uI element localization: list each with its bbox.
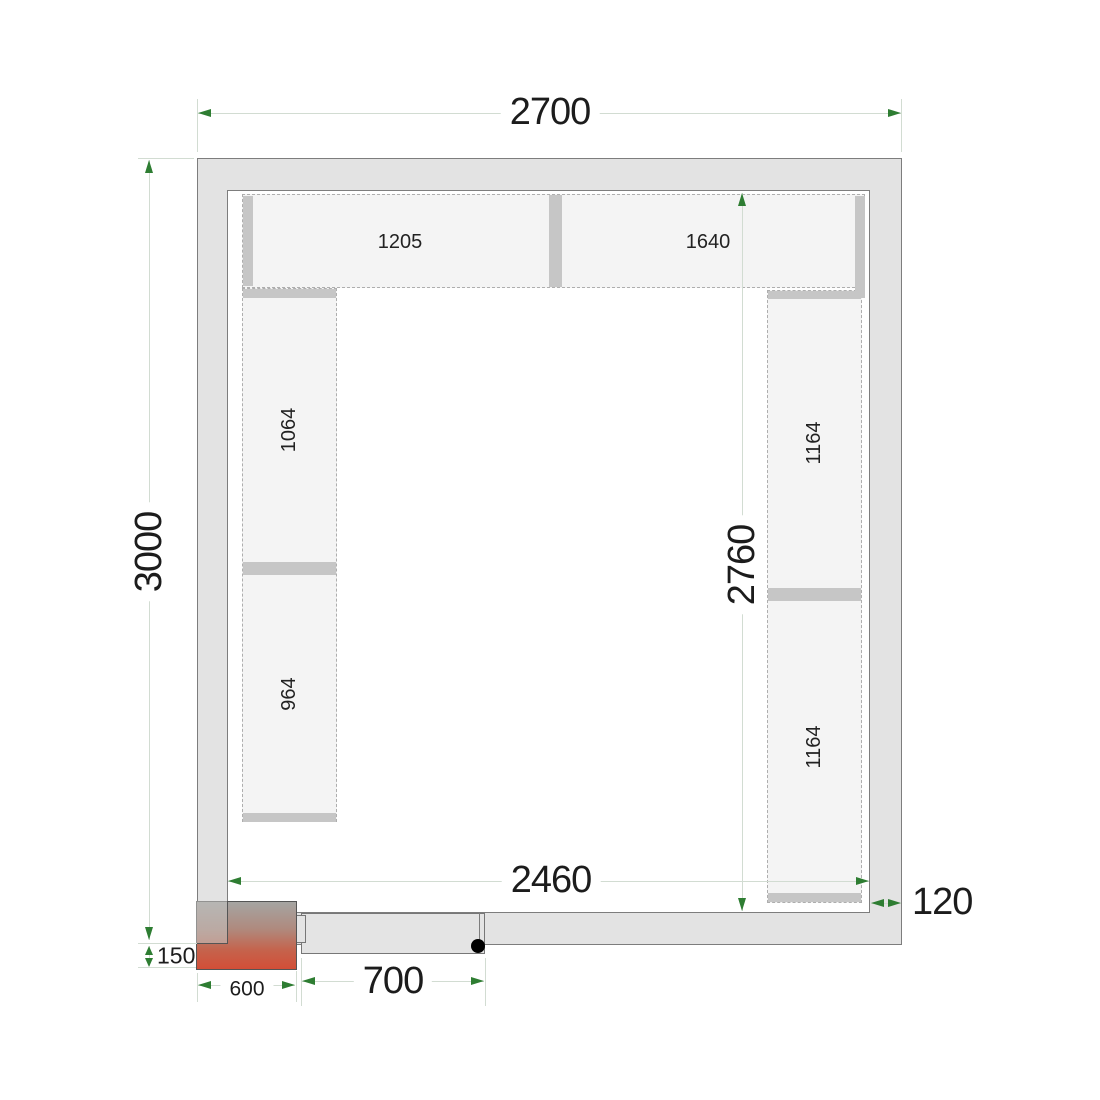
extension-line — [197, 99, 198, 152]
door-panel — [301, 913, 485, 954]
extension-line — [138, 158, 194, 159]
shelf-left-1-label: 1064 — [279, 408, 299, 453]
door-handle-dot — [471, 939, 485, 953]
extension-line — [296, 971, 297, 1002]
shelf-left-column — [242, 288, 337, 822]
extension-line — [901, 99, 902, 152]
dim-outer-width-label: 2700 — [501, 92, 600, 132]
shelf-support-bar — [243, 289, 336, 298]
shelf-support-bar — [243, 813, 336, 822]
dim-arrowhead-left-icon — [871, 899, 884, 907]
shelf-divider-bar — [243, 562, 336, 575]
shelf-top-1-label: 1205 — [378, 232, 423, 252]
dim-arrowhead-down-icon — [145, 927, 153, 940]
dim-inner-width-label: 2460 — [502, 860, 601, 900]
dim-arrowhead-right-icon — [888, 899, 901, 907]
dim-arrowhead-up-icon — [738, 193, 746, 206]
dim-inner-depth-label: 2760 — [722, 516, 762, 615]
dim-arrowhead-right-icon — [888, 109, 901, 117]
dim-outer-depth-label: 3000 — [129, 503, 169, 602]
door-jamb — [296, 915, 306, 943]
shelf-support-bar — [768, 893, 861, 902]
dim-unit-protrusion-label: 150 — [157, 945, 195, 968]
dim-unit-width-label: 600 — [220, 978, 273, 1001]
dim-door-width-label: 700 — [354, 961, 432, 1001]
dim-arrowhead-right-icon — [856, 877, 869, 885]
shelf-left-2-label: 964 — [279, 677, 299, 710]
dim-arrowhead-right-icon — [282, 981, 295, 989]
shelf-support-bar — [768, 291, 861, 299]
dim-arrowhead-left-icon — [198, 981, 211, 989]
dim-arrowhead-up-icon — [145, 160, 153, 173]
wall-corner-overlay — [196, 901, 228, 944]
dim-arrowhead-left-icon — [302, 977, 315, 985]
shelf-divider-bar — [768, 588, 861, 601]
shelf-top-2-label: 1640 — [686, 232, 731, 252]
dim-arrowhead-down-icon — [738, 898, 746, 911]
shelf-support-bar — [243, 196, 253, 286]
shelf-right-1-label: 1164 — [804, 421, 824, 464]
shelf-divider-bar — [549, 195, 562, 287]
dim-arrowhead-left-icon — [198, 109, 211, 117]
dim-arrowhead-right-icon — [471, 977, 484, 985]
dim-arrowhead-down-icon — [145, 958, 153, 967]
dim-arrowhead-up-icon — [145, 946, 153, 955]
shelf-right-2-label: 1164 — [804, 725, 824, 768]
floor-plan: 1205 1640 1064 964 1164 1164 2700 3000 2… — [0, 0, 1100, 1100]
dim-arrowhead-left-icon — [228, 877, 241, 885]
shelf-support-bar — [855, 196, 865, 298]
extension-line — [485, 958, 486, 1006]
dim-wall-thickness-label: 120 — [912, 883, 972, 921]
